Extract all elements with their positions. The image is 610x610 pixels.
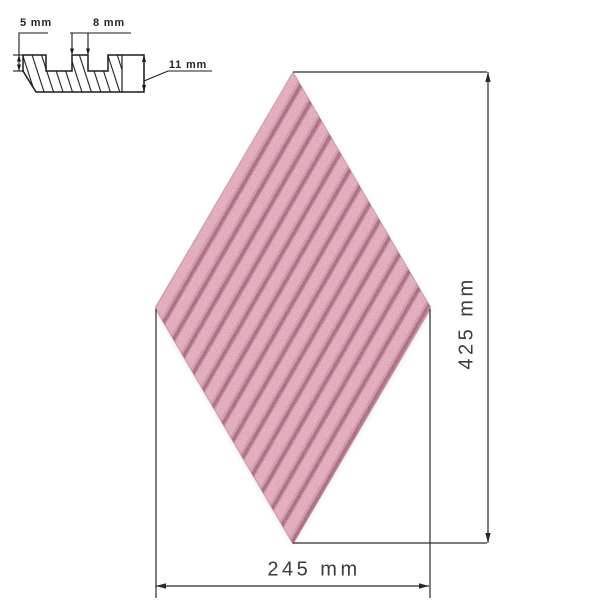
tile-height-label: 425 mm xyxy=(456,276,479,369)
dimension-width xyxy=(156,309,430,598)
technical-drawing-layer xyxy=(0,0,610,610)
cross-section-ridge-height-label: 5 mm xyxy=(20,17,52,29)
product-dimension-diagram: 5 mm 8 mm 11 mm 425 mm 245 mm xyxy=(0,0,610,610)
cross-section-ridge-width-label: 8 mm xyxy=(93,17,125,29)
cross-section-profile xyxy=(23,55,144,92)
tile-width-label: 245 mm xyxy=(267,559,360,582)
dimension-8mm xyxy=(70,33,131,55)
cross-section-thickness-label: 11 mm xyxy=(169,59,207,71)
